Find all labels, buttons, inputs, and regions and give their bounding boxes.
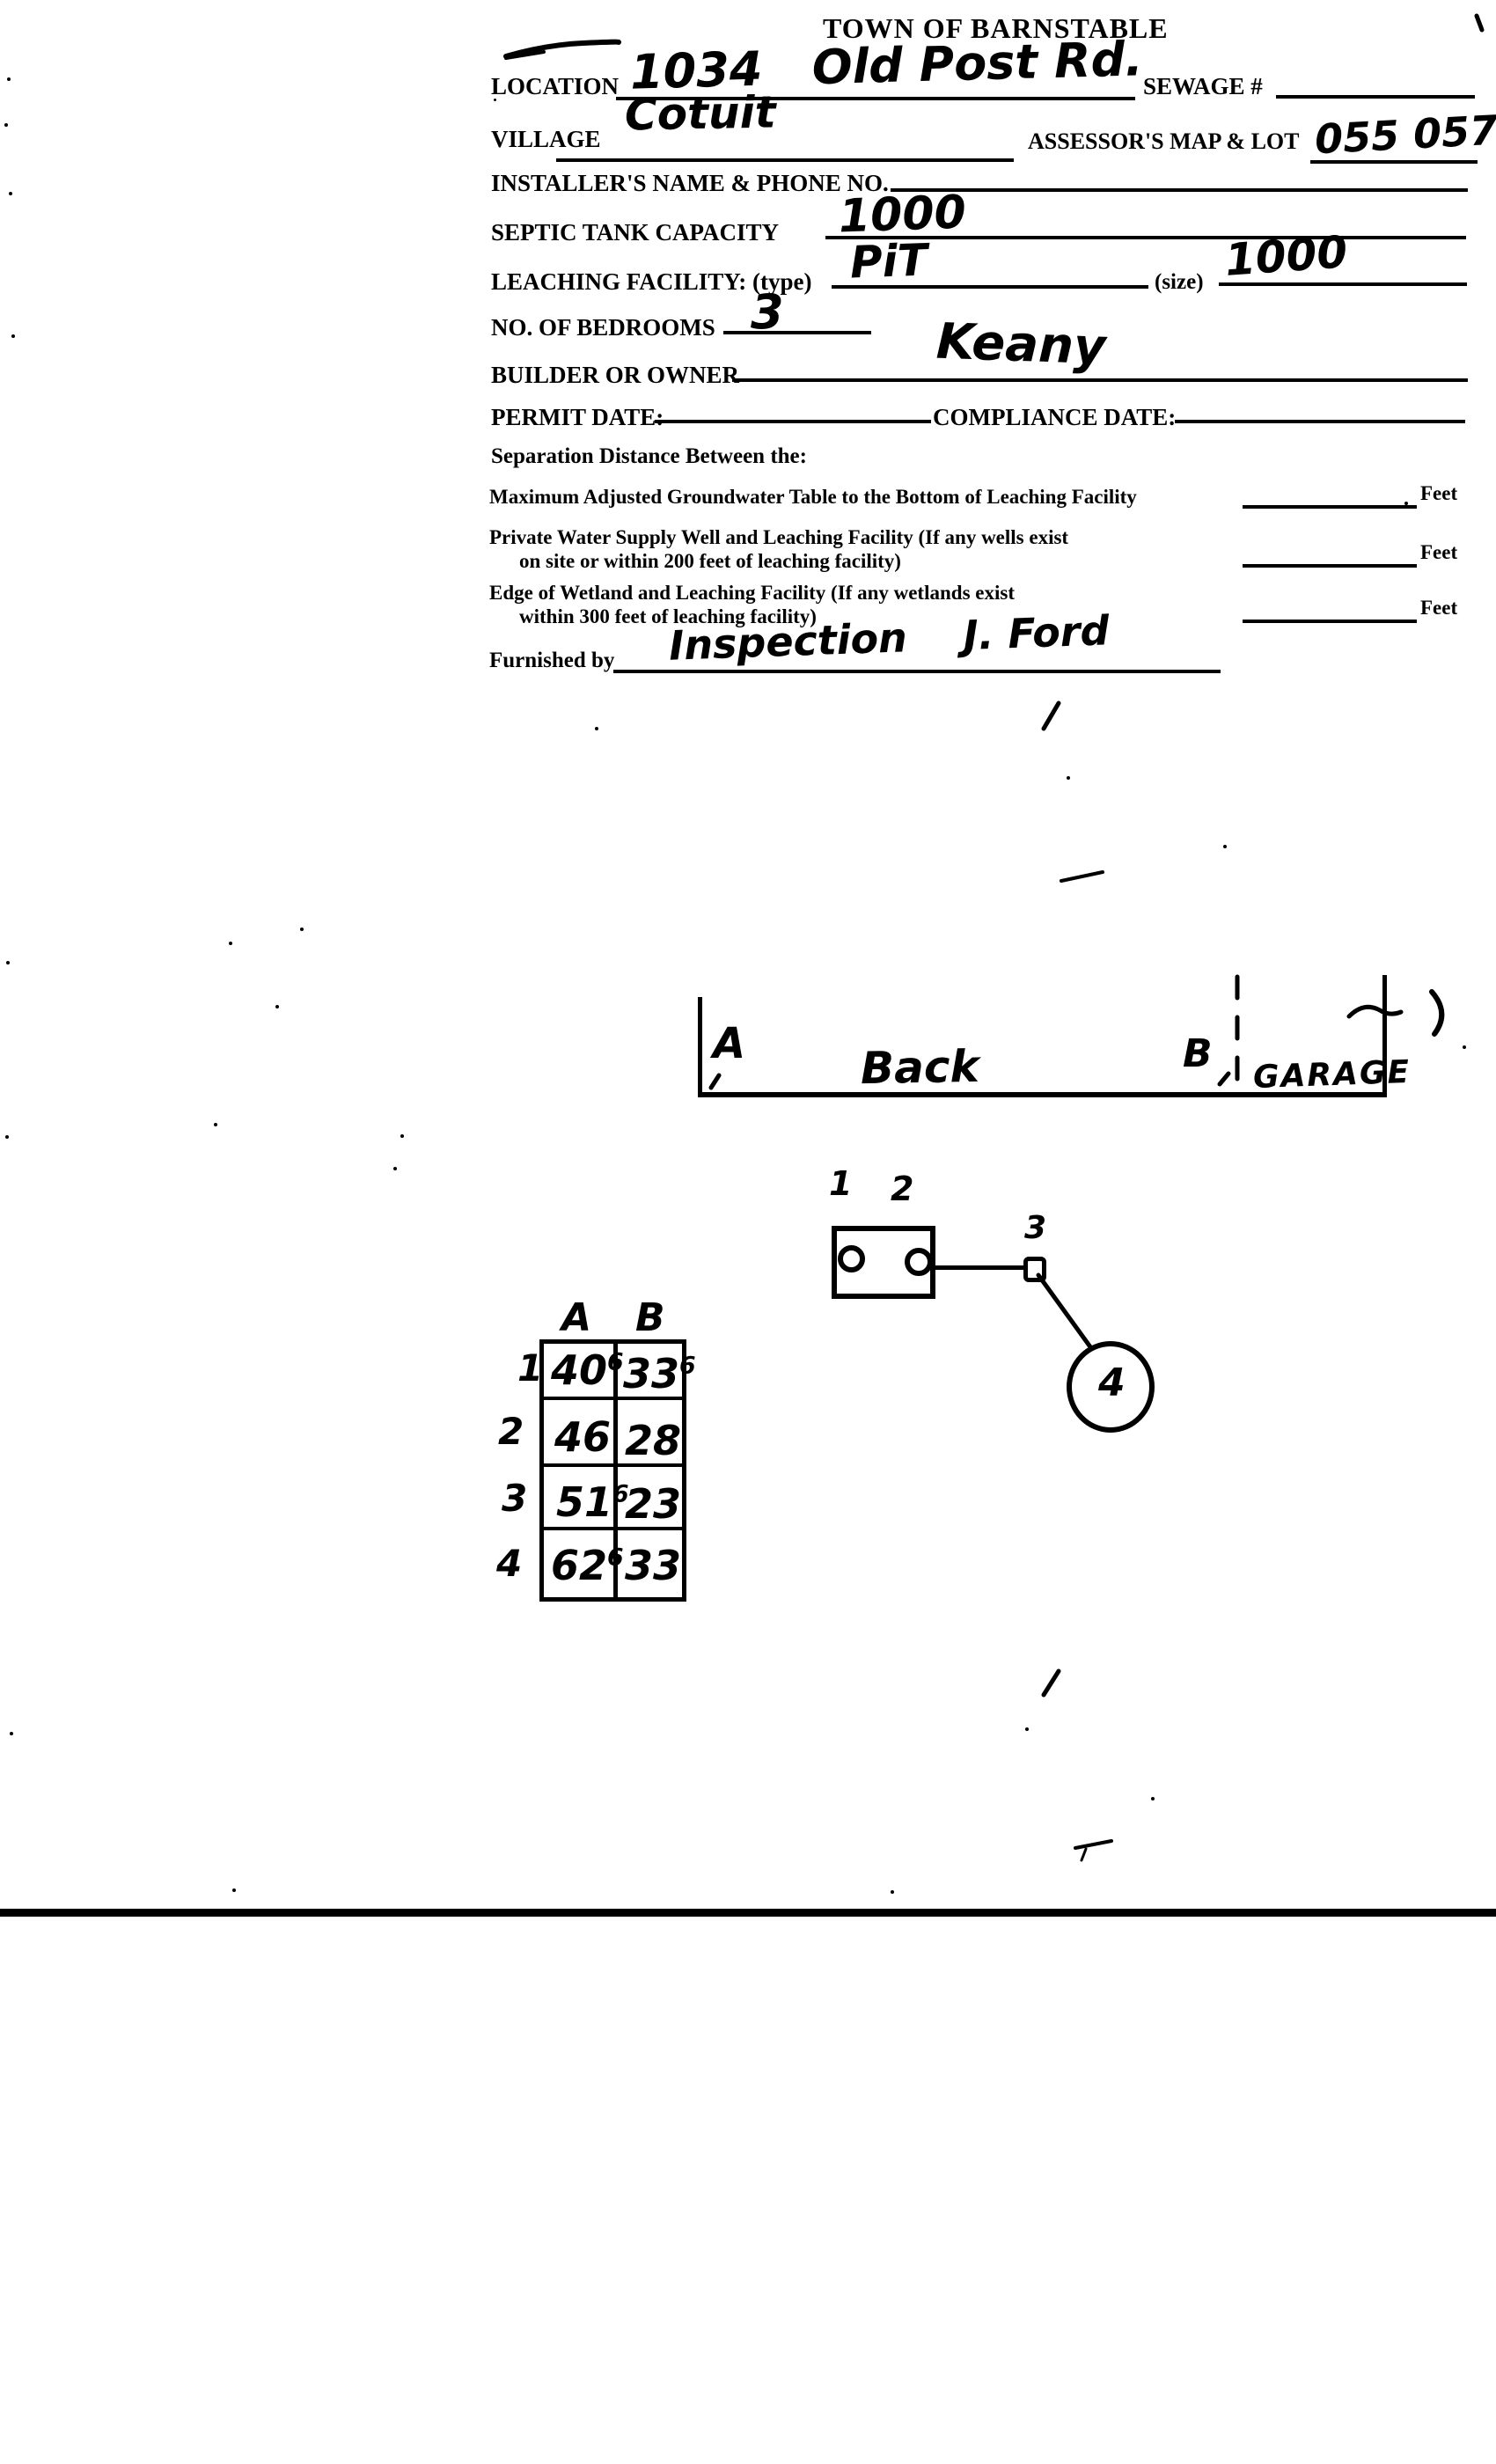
bedrooms-line xyxy=(723,331,871,334)
scan-speckle xyxy=(1223,845,1227,848)
scan-speckle xyxy=(300,928,304,931)
leaching-type-line xyxy=(832,285,1148,289)
village-label: VILLAGE xyxy=(491,127,601,151)
table-cell-2b-main: 28 xyxy=(625,1417,681,1464)
table-cell-2a: 46 xyxy=(554,1417,611,1457)
stray-dash-lower xyxy=(1075,1841,1111,1848)
table-cell-4b-main: 33 xyxy=(625,1542,681,1589)
separation-row2-text2: on site or within 200 feet of leaching f… xyxy=(519,550,901,572)
separation-row3-unit: Feet xyxy=(1420,597,1457,619)
scan-speckle xyxy=(595,727,598,730)
table-cell-4a-sup: 6 xyxy=(607,1544,624,1572)
stray-tick-top-right xyxy=(1477,16,1482,30)
scan-speckle xyxy=(1025,1727,1029,1731)
separation-row3-line xyxy=(1243,620,1417,623)
permit-date-line xyxy=(655,420,931,423)
scanned-septic-form-page: TOWN OF BARNSTABLE LOCATION 1034 Old Pos… xyxy=(0,0,1496,2464)
sketch-back-label: Back xyxy=(861,1045,980,1090)
sewage-number-line xyxy=(1276,95,1475,99)
separation-row2-line xyxy=(1243,564,1417,568)
separation-row1-text: Maximum Adjusted Groundwater Table to th… xyxy=(489,486,1137,508)
leaching-size-label: (size) xyxy=(1155,271,1204,294)
sketch-point-b-label: B xyxy=(1183,1035,1213,1074)
separation-row2-text: Private Water Supply Well and Leaching F… xyxy=(489,526,1068,548)
table-header-a: A xyxy=(561,1299,591,1338)
sewage-number-label: SEWAGE # xyxy=(1143,74,1263,99)
table-cell-1a-sup: 6 xyxy=(607,1349,624,1376)
sketch-left-wall xyxy=(698,997,702,1096)
table-cell-1b-sup: 6 xyxy=(679,1353,696,1380)
stray-slash-upper xyxy=(1044,703,1059,729)
separation-row1-line xyxy=(1243,505,1417,509)
scan-speckle xyxy=(6,961,10,964)
stray-slash-lower xyxy=(1044,1671,1059,1695)
diagram-tank-port2-label: 2 xyxy=(891,1172,913,1206)
table-cell-3a: 516 xyxy=(556,1482,629,1522)
sketch-point-a-label: A xyxy=(713,1023,745,1065)
scan-speckle xyxy=(494,99,496,101)
table-cell-2b: 28 xyxy=(625,1420,681,1461)
leaching-size-line xyxy=(1219,282,1467,286)
scan-speckle xyxy=(275,1005,279,1008)
table-cell-4b: 33 xyxy=(625,1545,681,1586)
builder-owner-line xyxy=(732,378,1468,382)
scan-speckle xyxy=(10,1732,13,1735)
hand-drawn-overlay xyxy=(0,0,1496,2464)
bedrooms-value: 3 xyxy=(751,289,784,336)
village-value: Cotuit xyxy=(625,91,776,137)
table-row4-label: 4 xyxy=(496,1545,522,1582)
septic-capacity-label: SEPTIC TANK CAPACITY xyxy=(491,220,779,245)
table-cell-1a-main: 40 xyxy=(551,1346,607,1394)
diagram-distribution-box xyxy=(1023,1257,1046,1282)
village-line xyxy=(556,158,1014,162)
diagram-tank-port1-label: 1 xyxy=(829,1167,852,1200)
table-cell-4a-main: 62 xyxy=(551,1542,607,1589)
separation-row2-unit: Feet xyxy=(1420,541,1457,563)
scan-speckle xyxy=(1463,1045,1466,1049)
installer-label: INSTALLER'S NAME & PHONE NO. xyxy=(491,171,889,195)
diagram-dbox-label: 3 xyxy=(1024,1213,1046,1244)
compliance-date-label: COMPLIANCE DATE: xyxy=(933,405,1176,429)
table-row2-label: 2 xyxy=(498,1413,524,1450)
leaching-type-value: PiT xyxy=(849,238,928,284)
sketch-paren-mark xyxy=(1432,992,1441,1034)
scan-speckle xyxy=(1404,502,1408,505)
diagram-tank-port1-circle xyxy=(838,1245,865,1272)
table-row3-label: 3 xyxy=(502,1480,527,1517)
scan-speckle xyxy=(232,1888,236,1892)
table-row1-label: 1 xyxy=(517,1350,543,1387)
pen-scribble-tail xyxy=(506,52,544,58)
scan-speckle xyxy=(1067,776,1070,780)
furnished-by-line xyxy=(613,670,1221,673)
furnished-by-label: Furnished by xyxy=(489,649,614,672)
table-cell-3a-main: 51 xyxy=(556,1478,612,1526)
assessors-map-lot-label: ASSESSOR'S MAP & LOT xyxy=(1028,129,1299,153)
pen-scribble-above-location xyxy=(506,42,619,56)
builder-owner-value: Keany xyxy=(935,318,1106,373)
bedrooms-label: NO. OF BEDROOMS xyxy=(491,315,715,340)
assessors-map-lot-value: 055 057 xyxy=(1314,110,1496,160)
scan-speckle xyxy=(891,1890,894,1894)
scan-speckle xyxy=(1151,1797,1155,1800)
scan-speckle xyxy=(229,942,232,945)
location-label: LOCATION xyxy=(491,74,619,99)
separation-row1-unit: Feet xyxy=(1420,482,1457,504)
table-cell-1b-main: 33 xyxy=(623,1350,679,1397)
table-cell-3b: 23 xyxy=(625,1484,681,1524)
leaching-size-value: 1000 xyxy=(1223,230,1348,282)
table-cell-2a-main: 46 xyxy=(554,1413,611,1461)
table-cell-3b-main: 23 xyxy=(625,1480,681,1528)
stray-dash-upper xyxy=(1061,872,1103,881)
scan-speckle xyxy=(214,1123,217,1126)
scan-speckle xyxy=(5,1135,9,1139)
table-header-b: B xyxy=(635,1299,665,1338)
sketch-point-b-tick xyxy=(1220,1074,1228,1084)
septic-capacity-value: 1000 xyxy=(838,189,966,239)
diagram-tank-port2-circle xyxy=(905,1248,933,1276)
scan-speckle xyxy=(400,1134,404,1138)
table-cell-1b: 336 xyxy=(623,1353,696,1394)
sketch-corner-curl xyxy=(1349,1007,1401,1016)
table-cell-4a: 626 xyxy=(551,1545,624,1586)
scan-speckle xyxy=(9,192,12,195)
page-bottom-rule xyxy=(0,1909,1496,1917)
sketch-garage-label: GARAGE xyxy=(1252,1057,1411,1094)
scan-speckle xyxy=(7,77,11,81)
permit-date-label: PERMIT DATE: xyxy=(491,405,664,429)
builder-owner-label: BUILDER OR OWNER xyxy=(491,363,739,387)
diagram-tank-to-dbox-pipe xyxy=(935,1265,1025,1270)
assessors-map-lot-line xyxy=(1310,160,1478,164)
scan-speckle xyxy=(11,334,15,338)
compliance-date-line xyxy=(1175,420,1465,423)
diagram-dbox-to-pit-pipe xyxy=(1038,1275,1091,1348)
stray-tick-above-rule xyxy=(1082,1849,1086,1860)
table-cell-1a: 406 xyxy=(551,1350,624,1390)
scan-speckle xyxy=(393,1167,397,1170)
diagram-leach-pit-label: 4 xyxy=(1098,1364,1126,1403)
installer-line xyxy=(891,188,1468,192)
sketch-point-a-tick xyxy=(711,1075,719,1088)
separation-heading: Separation Distance Between the: xyxy=(491,445,807,468)
scan-speckle xyxy=(4,123,8,127)
separation-row3-text: Edge of Wetland and Leaching Facility (I… xyxy=(489,582,1015,604)
